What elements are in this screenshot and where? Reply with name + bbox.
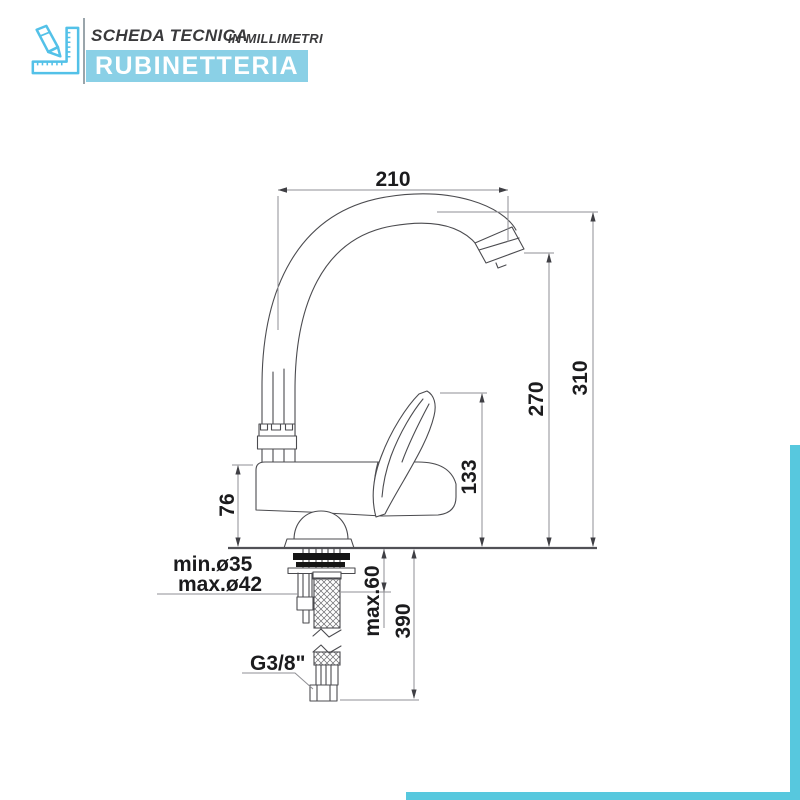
dimension-labels: 210 310 270 133 76 max.60 390 min.ø35 ma… (173, 168, 592, 675)
hose-hex-nut (310, 685, 337, 701)
dim-spout-reach: 210 (375, 168, 410, 191)
rubber-gasket-2 (296, 562, 345, 567)
technical-sheet-page: SCHEDA TECNICA IN MILLIMETRI RUBINETTERI… (0, 0, 800, 800)
dim-lever-height: 133 (458, 459, 481, 494)
braided-hose-lower (314, 652, 340, 665)
faucet-outline (256, 194, 524, 548)
frame-border-right (790, 445, 800, 800)
braided-hose-upper (314, 578, 340, 628)
fixing-nut (297, 597, 313, 610)
dim-body-height: 76 (216, 493, 239, 516)
dim-total-height: 310 (569, 360, 592, 395)
dim-hole-max: max.ø42 (178, 573, 262, 596)
faucet-technical-drawing: 210 310 270 133 76 max.60 390 min.ø35 ma… (0, 0, 800, 800)
dim-hose-length: 390 (392, 603, 415, 638)
rubber-gasket (293, 553, 350, 560)
dim-outlet-height: 270 (525, 381, 548, 416)
frame-border-bottom (406, 792, 800, 800)
pipe-break-symbol (313, 629, 341, 637)
dim-connection-thread: G3/8" (250, 652, 305, 675)
under-deck-assembly (288, 548, 355, 701)
dim-deck-thickness: max.60 (361, 565, 384, 636)
hose-ferrule (316, 665, 338, 685)
